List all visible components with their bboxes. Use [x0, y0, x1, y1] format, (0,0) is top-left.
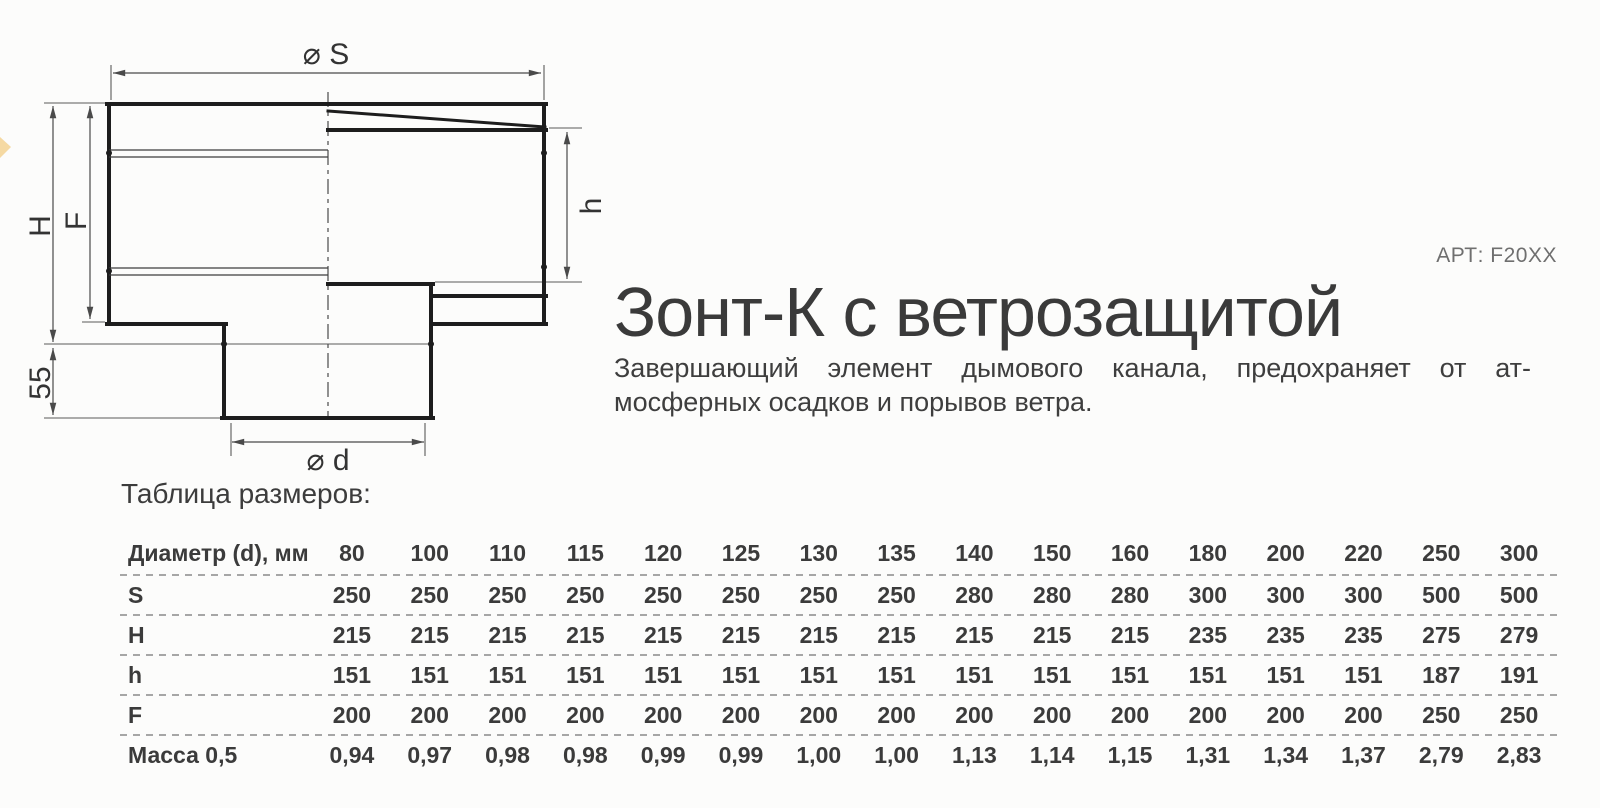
table-cell: 120 [624, 540, 702, 567]
table-cell: 215 [391, 622, 469, 649]
table-cell: 200 [391, 702, 469, 729]
product-sheet: ⌀ S ⌀ d H F 55 h Зонт-К с ветрозащитой А… [0, 0, 1600, 808]
table-cell: 180 [1169, 540, 1247, 567]
table-cell: 110 [469, 540, 547, 567]
table-cell: 215 [702, 622, 780, 649]
table-cell: 151 [1013, 662, 1091, 689]
table-cell: 300 [1169, 582, 1247, 609]
table-cell: 125 [702, 540, 780, 567]
table-cell: 250 [858, 582, 936, 609]
table-row: S250250250250250250250250280280280300300… [120, 576, 1558, 614]
table-cell: 151 [546, 662, 624, 689]
table-cell: 215 [1091, 622, 1169, 649]
weld-nubs [106, 150, 547, 347]
row-label: F [120, 702, 313, 729]
table-cell: 0,98 [546, 742, 624, 769]
table-cell: 215 [780, 622, 858, 649]
table-cell: 151 [313, 662, 391, 689]
table-row: Диаметр (d), мм8010011011512012513013514… [120, 532, 1558, 574]
table-cell: 250 [624, 582, 702, 609]
table-cell: 200 [1325, 702, 1403, 729]
table-cell: 215 [936, 622, 1014, 649]
product-description: Завершающий элемент дымового канала, пре… [614, 351, 1531, 419]
table-cell: 215 [624, 622, 702, 649]
table-cell: 0,99 [702, 742, 780, 769]
table-cell: 200 [1013, 702, 1091, 729]
table-cell: 200 [1247, 702, 1325, 729]
table-cell: 151 [1325, 662, 1403, 689]
table-cell: 215 [858, 622, 936, 649]
table-cell: 160 [1091, 540, 1169, 567]
cap-outline [107, 104, 546, 418]
table-cell: 151 [702, 662, 780, 689]
table-cell: 150 [1013, 540, 1091, 567]
table-cell: 215 [313, 622, 391, 649]
table-row: F200200200200200200200200200200200200200… [120, 696, 1558, 734]
table-cell: 1,00 [858, 742, 936, 769]
table-cell: 300 [1480, 540, 1558, 567]
dim-label-h: h [575, 198, 608, 215]
table-cell: 215 [469, 622, 547, 649]
accent-mark [0, 137, 11, 158]
table-cell: 130 [780, 540, 858, 567]
table-cell: 250 [780, 582, 858, 609]
table-cell: 0,94 [313, 742, 391, 769]
table-cell: 250 [702, 582, 780, 609]
table-cell: 151 [1247, 662, 1325, 689]
description-line-2: мосферных осадков и порывов ветра. [614, 385, 1531, 419]
table-row: h151151151151151151151151151151151151151… [120, 656, 1558, 694]
dim-label-55: 55 [24, 366, 57, 399]
table-cell: 250 [1480, 702, 1558, 729]
dim-label-H: H [24, 215, 57, 237]
table-cell: 1,15 [1091, 742, 1169, 769]
table-cell: 200 [1247, 540, 1325, 567]
table-cell: 1,14 [1013, 742, 1091, 769]
table-cell: 200 [702, 702, 780, 729]
table-cell: 0,98 [469, 742, 547, 769]
table-cell: 135 [858, 540, 936, 567]
table-cell: 280 [1091, 582, 1169, 609]
table-row: H215215215215215215215215215215215235235… [120, 616, 1558, 654]
table-cell: 80 [313, 540, 391, 567]
table-cell: 235 [1247, 622, 1325, 649]
dim-label-F: F [60, 212, 93, 230]
seam-lines [109, 150, 328, 275]
table-cell: 200 [1169, 702, 1247, 729]
row-label: H [120, 622, 313, 649]
table-heading: Таблица размеров: [121, 478, 371, 510]
table-row: Масса 0,50,940,970,980,980,990,991,001,0… [120, 736, 1558, 774]
table-cell: 151 [936, 662, 1014, 689]
technical-drawing: ⌀ S ⌀ d H F 55 h [0, 0, 620, 480]
table-cell: 280 [1013, 582, 1091, 609]
table-cell: 151 [780, 662, 858, 689]
table-cell: 140 [936, 540, 1014, 567]
table-cell: 1,13 [936, 742, 1014, 769]
table-cell: 300 [1325, 582, 1403, 609]
table-cell: 275 [1402, 622, 1480, 649]
table-cell: 235 [1169, 622, 1247, 649]
table-cell: 250 [313, 582, 391, 609]
table-cell: 250 [546, 582, 624, 609]
table-cell: 1,31 [1169, 742, 1247, 769]
table-cell: 151 [469, 662, 547, 689]
table-cell: 200 [313, 702, 391, 729]
table-cell: 250 [469, 582, 547, 609]
size-table: Диаметр (d), мм8010011011512012513013514… [120, 532, 1558, 774]
dim-label-top-diameter: ⌀ S [303, 38, 349, 71]
table-cell: 215 [546, 622, 624, 649]
row-label: S [120, 582, 313, 609]
table-cell: 151 [1091, 662, 1169, 689]
page-title: Зонт-К с ветрозащитой [614, 277, 1342, 347]
table-cell: 279 [1480, 622, 1558, 649]
table-cell: 200 [624, 702, 702, 729]
table-cell: 0,97 [391, 742, 469, 769]
table-cell: 215 [1013, 622, 1091, 649]
dim-label-bottom-diameter: ⌀ d [306, 444, 349, 477]
table-cell: 187 [1402, 662, 1480, 689]
article-number: АРТ: F20XX [1436, 244, 1557, 268]
table-cell: 220 [1325, 540, 1403, 567]
row-label: Масса 0,5 [120, 742, 313, 769]
table-cell: 151 [391, 662, 469, 689]
table-cell: 250 [1402, 702, 1480, 729]
table-cell: 200 [858, 702, 936, 729]
table-cell: 1,37 [1325, 742, 1403, 769]
table-cell: 200 [1091, 702, 1169, 729]
row-label: Диаметр (d), мм [120, 540, 313, 567]
table-cell: 280 [936, 582, 1014, 609]
table-cell: 1,34 [1247, 742, 1325, 769]
table-cell: 200 [546, 702, 624, 729]
table-cell: 2,79 [1402, 742, 1480, 769]
table-cell: 200 [936, 702, 1014, 729]
description-line-1: Завершающий элемент дымового канала, пре… [614, 351, 1531, 385]
table-cell: 500 [1480, 582, 1558, 609]
table-cell: 250 [1402, 540, 1480, 567]
table-cell: 200 [780, 702, 858, 729]
table-cell: 200 [469, 702, 547, 729]
table-cell: 151 [624, 662, 702, 689]
table-cell: 2,83 [1480, 742, 1558, 769]
table-cell: 100 [391, 540, 469, 567]
table-cell: 235 [1325, 622, 1403, 649]
table-cell: 115 [546, 540, 624, 567]
table-cell: 250 [391, 582, 469, 609]
table-cell: 191 [1480, 662, 1558, 689]
table-cell: 0,99 [624, 742, 702, 769]
table-cell: 300 [1247, 582, 1325, 609]
row-label: h [120, 662, 313, 689]
table-cell: 500 [1402, 582, 1480, 609]
table-cell: 151 [1169, 662, 1247, 689]
table-cell: 1,00 [780, 742, 858, 769]
table-cell: 151 [858, 662, 936, 689]
